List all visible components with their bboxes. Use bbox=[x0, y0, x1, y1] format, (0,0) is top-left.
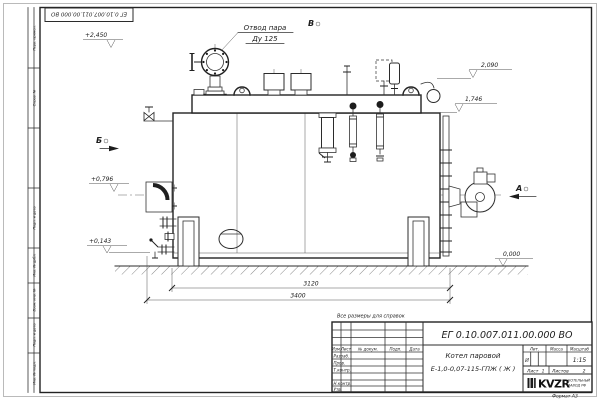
steam-outlet-valve bbox=[190, 49, 229, 95]
steam-outlet-callout: Отвод пара Ду 125 bbox=[221, 24, 293, 51]
view-marker-a: А bbox=[509, 184, 536, 199]
boiler-body bbox=[173, 95, 452, 266]
logo-sub2: ЗАВОД РФ bbox=[568, 384, 586, 388]
margin-label: Инв. № дубл. bbox=[33, 253, 37, 276]
elevation-mark: +2,450 bbox=[83, 32, 123, 48]
col-doc: № докум. bbox=[357, 347, 378, 352]
logo-sub1: КОТЕЛЬНЫЙ bbox=[568, 378, 590, 383]
front-fittings bbox=[144, 107, 177, 258]
lifting-lug bbox=[400, 87, 421, 95]
elevation-mark: 1,746 bbox=[440, 96, 497, 113]
rear-flange bbox=[443, 116, 449, 256]
svg-text:+0,796: +0,796 bbox=[91, 176, 113, 183]
lit-header: Лит. bbox=[529, 347, 539, 352]
elevation-mark: +0,143 bbox=[87, 238, 150, 253]
mass-header: Масса bbox=[550, 347, 563, 352]
logo-text: KVZR bbox=[538, 378, 571, 391]
svg-text:1,746: 1,746 bbox=[465, 96, 482, 103]
support-foot-front bbox=[178, 217, 199, 266]
product-name-line2: Е-1,0-0,07-115-ГПЖ ( Ж ) bbox=[431, 365, 516, 373]
svg-text:Ду 125: Ду 125 bbox=[251, 35, 278, 43]
view-marker-v: В bbox=[308, 19, 320, 28]
lifting-lug bbox=[231, 87, 253, 95]
elevation-mark: 0,000 bbox=[495, 251, 533, 266]
drawing-sheet: Перв. примен. Справ. № Подп. и дата Инв.… bbox=[0, 0, 600, 400]
elevation-mark: +0,796 bbox=[89, 176, 129, 192]
margin-label: Инв. № подл. bbox=[33, 361, 37, 384]
ground-line bbox=[115, 266, 528, 275]
row-utv: Утв. bbox=[334, 387, 342, 392]
boiler-assembly-drawing: Перв. примен. Справ. № Подп. и дата Инв.… bbox=[0, 0, 600, 400]
col-izm: Изм. bbox=[332, 347, 341, 352]
dimension-overall-length: 3400 bbox=[144, 293, 453, 304]
support-foot-rear bbox=[408, 217, 429, 266]
sheet-value: 1 bbox=[542, 369, 545, 375]
row-razrab: Разраб. bbox=[334, 354, 350, 359]
safety-valve-box bbox=[264, 74, 284, 96]
svg-text:В: В bbox=[308, 19, 314, 28]
row-prov: Пров. bbox=[334, 361, 346, 366]
margin-label: Подп. и дата bbox=[33, 206, 37, 229]
row-tkontr: Т.контр. bbox=[334, 368, 351, 373]
svg-text:+0,143: +0,143 bbox=[89, 238, 111, 245]
product-name-line1: Котел паровой bbox=[446, 352, 501, 360]
safety-valve-box bbox=[291, 74, 311, 96]
row-nkontr: Н.контр. bbox=[334, 381, 352, 386]
scale-header: Масштаб bbox=[570, 347, 590, 352]
margin-label: Справ. № bbox=[33, 89, 37, 106]
elevation-mark: 2,090 bbox=[437, 62, 512, 79]
lit-value: И bbox=[525, 358, 529, 364]
svg-text:Отвод пара: Отвод пара bbox=[244, 24, 287, 32]
svg-text:+2,450: +2,450 bbox=[85, 32, 107, 39]
margin-label: Перв. примен. bbox=[33, 25, 37, 50]
margin-label: Взам. инв. № bbox=[33, 288, 37, 311]
svg-text:А: А bbox=[515, 184, 522, 193]
sheets-label: Листов bbox=[551, 369, 569, 375]
view-marker-b: Б bbox=[96, 136, 119, 151]
drum-top-casing bbox=[192, 95, 421, 113]
svg-text:0,000: 0,000 bbox=[503, 251, 520, 258]
reference-note: Все размеры для справок bbox=[337, 314, 405, 320]
svg-text:3120: 3120 bbox=[303, 281, 318, 288]
sheets-value: 2 bbox=[583, 369, 586, 375]
cylinder-fitting bbox=[390, 63, 400, 95]
sheet-label: Лист bbox=[526, 369, 539, 375]
col-list: Лист bbox=[340, 347, 352, 352]
probe-rod bbox=[343, 66, 351, 95]
svg-text:2,090: 2,090 bbox=[481, 62, 498, 69]
burner-elbow-box bbox=[146, 182, 177, 212]
burner-fan-unit bbox=[449, 168, 495, 217]
top-stamp-number: ЕГ 0.10.007.011.00.000 ВО bbox=[50, 10, 127, 16]
svg-text:Б: Б bbox=[96, 136, 102, 145]
drain-valve bbox=[149, 238, 174, 258]
title-block: Изм. Лист № докум. Подп. Дата Разраб. Пр… bbox=[332, 322, 592, 400]
svg-text:3400: 3400 bbox=[290, 293, 305, 300]
col-data: Дата bbox=[408, 347, 420, 352]
doc-number: ЕГ 0.10.007.011.00.000 ВО bbox=[441, 330, 573, 341]
margin-label: Подп. и дата bbox=[33, 323, 37, 346]
format-label: Формат А3 bbox=[552, 394, 578, 400]
corner-tap-valve bbox=[144, 107, 173, 121]
dimension-support-span: 3120 bbox=[169, 281, 453, 292]
scale-value: 1:15 bbox=[573, 357, 587, 364]
col-podp: Подп. bbox=[389, 347, 401, 352]
hook-pipe-valve bbox=[421, 82, 440, 102]
